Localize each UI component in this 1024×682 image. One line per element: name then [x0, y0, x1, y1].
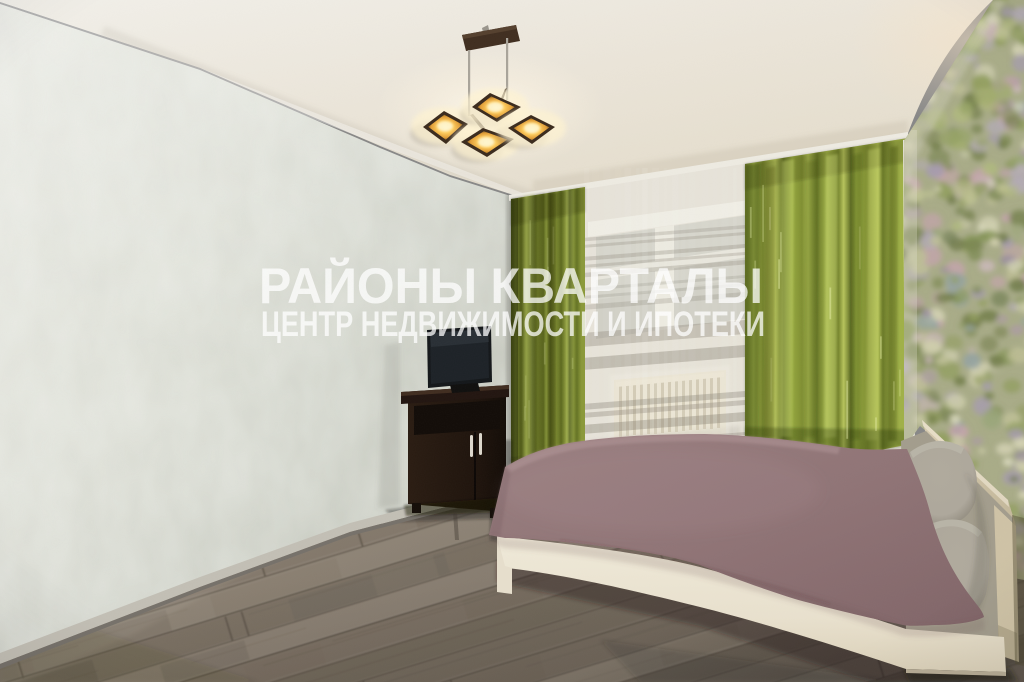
svg-text:ЦЕНТР НЕДВИЖИМОСТИ И ИПОТЕКИ: ЦЕНТР НЕДВИЖИМОСТИ И ИПОТЕКИ — [261, 305, 765, 344]
